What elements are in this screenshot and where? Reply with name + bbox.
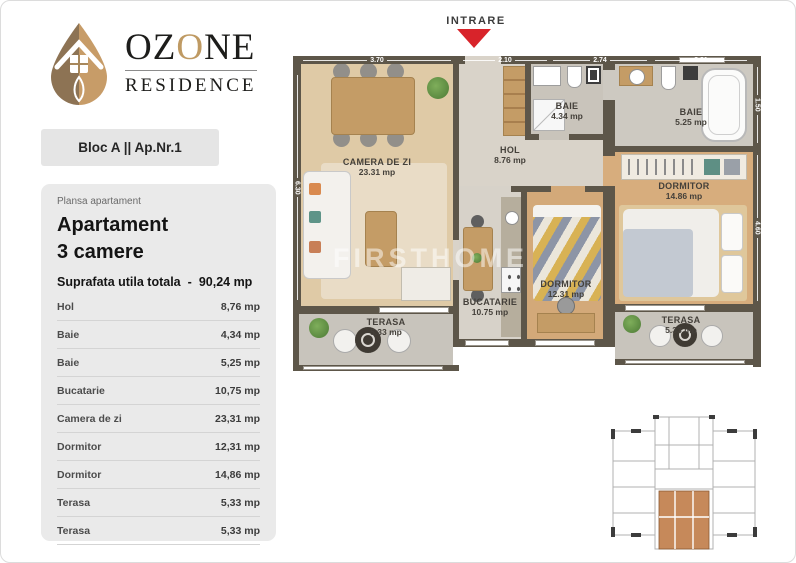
- row-label: Camera de zi: [57, 413, 122, 425]
- sheet: OZONE RESIDENCE Bloc A || Ap.Nr.1 Plansa…: [0, 0, 796, 563]
- key-plan-highlighted-unit: [659, 491, 709, 549]
- room-area: 5.25 mp: [651, 117, 731, 127]
- row-value: 5,33 mp: [221, 497, 260, 509]
- door-opening: [603, 156, 615, 186]
- card-title: Apartament 3 camere: [57, 212, 260, 266]
- room-name: BAIE: [651, 107, 731, 117]
- row-value: 23,31 mp: [215, 413, 260, 425]
- toilet: [661, 66, 676, 90]
- room-label-camera-de-zi: CAMERA DE ZI 23.31 mp: [317, 157, 437, 177]
- room-area: 4.34 mp: [527, 111, 607, 121]
- area-row-terasa-2: Terasa5,33 mp: [57, 517, 260, 545]
- dimension-value: 3.31: [691, 57, 711, 64]
- room-name: TERASA: [326, 317, 446, 327]
- dimension-top-2: 2.10: [463, 57, 547, 63]
- area-table: Hol8,76 mp Baie4,34 mp Baie5,25 mp Bucat…: [57, 293, 260, 545]
- room-name: BAIE: [527, 101, 607, 111]
- row-value: 8,76 mp: [221, 301, 260, 313]
- row-label: Hol: [57, 301, 74, 313]
- wall: [525, 56, 531, 140]
- row-label: Terasa: [57, 525, 90, 537]
- room-area: 10.75 mp: [450, 307, 530, 317]
- bathtub: [701, 68, 747, 142]
- room-name: DORMITOR: [526, 279, 606, 289]
- desk: [537, 313, 595, 333]
- door-opening: [551, 186, 585, 192]
- washing-machine: [586, 66, 601, 84]
- dimension-value: 2.10: [495, 57, 515, 64]
- dimension-value: 6.30: [294, 178, 301, 198]
- bed-pillow: [533, 205, 601, 217]
- wardrobe: [621, 154, 747, 180]
- area-row-dormitor-2: Dormitor14,86 mp: [57, 461, 260, 489]
- room-label-baie-mica: BAIE 4.34 mp: [527, 101, 607, 121]
- pillow: [309, 241, 321, 253]
- row-value: 12,31 mp: [215, 441, 260, 453]
- dimension-top-1: 3.70: [303, 57, 451, 63]
- row-value: 5,25 mp: [221, 357, 260, 369]
- room-label-dormitor-mic: DORMITOR 12.31 mp: [526, 279, 606, 299]
- window: [379, 307, 449, 313]
- building-key-plan: [603, 413, 765, 553]
- total-area-label: Suprafata utila totala: [57, 275, 181, 289]
- entrance-arrow-icon: [457, 29, 491, 48]
- row-label: Dormitor: [57, 441, 101, 453]
- room-area: 12.31 mp: [526, 289, 606, 299]
- folded-clothes: [724, 159, 740, 175]
- dimension-top-4: 3.31: [655, 57, 747, 63]
- wall: [615, 146, 753, 152]
- door-opening: [603, 70, 615, 100]
- room-label-terasa-stanga: TERASA 5.33 mp: [326, 317, 446, 337]
- dimension-right-2: 4.60: [753, 155, 761, 301]
- row-label: Terasa: [57, 497, 90, 509]
- brand-name-part: OZ: [125, 27, 176, 68]
- washbasin: [629, 69, 645, 85]
- dimension-value: 4.60: [754, 218, 761, 238]
- brand-name-accent: O: [176, 27, 204, 68]
- row-value: 4,34 mp: [221, 329, 260, 341]
- brand-logo-icon: [43, 21, 115, 105]
- room-area: 14.86 mp: [634, 191, 734, 201]
- washbasin: [533, 66, 561, 86]
- room-area: 5.33 mp: [326, 327, 446, 337]
- terrace-window: [625, 360, 745, 364]
- closet-cabinet: [503, 66, 527, 136]
- dimension-value: 2.74: [590, 57, 610, 64]
- room-label-dormitor-mare: DORMITOR 14.86 mp: [634, 181, 734, 201]
- toilet: [567, 66, 582, 88]
- total-area-value: 90,24 mp: [199, 275, 253, 289]
- room-label-terasa-dreapta: TERASA 5.33 mp: [631, 315, 731, 335]
- row-value: 10,75 mp: [215, 385, 260, 397]
- terrace-window: [303, 366, 443, 370]
- total-area-line: Suprafata utila totala - 90,24 mp: [57, 275, 260, 289]
- room-name: TERASA: [631, 315, 731, 325]
- room-label-hol: HOL 8.76 mp: [470, 145, 550, 165]
- bed-pillow: [721, 255, 743, 293]
- kitchen-passage: [459, 186, 511, 192]
- brand-logo: OZONE RESIDENCE: [43, 21, 257, 105]
- unit-badge-label: Bloc A || Ap.Nr.1: [78, 140, 182, 155]
- brand-subname: RESIDENCE: [125, 70, 257, 97]
- room-area: 23.31 mp: [317, 167, 437, 177]
- card-eyebrow: Plansa apartament: [57, 196, 260, 207]
- folded-clothes: [704, 159, 720, 175]
- terrace-parapet: [293, 314, 299, 371]
- pillow: [309, 183, 321, 195]
- area-row-camera-de-zi: Camera de zi23,31 mp: [57, 405, 260, 433]
- card-title-line2: 3 camere: [57, 239, 260, 266]
- area-row-dormitor-1: Dormitor12,31 mp: [57, 433, 260, 461]
- window: [465, 340, 509, 346]
- room-name: CAMERA DE ZI: [317, 157, 437, 167]
- card-title-line1: Apartament: [57, 212, 260, 239]
- sink: [505, 211, 519, 225]
- row-value: 5,33 mp: [221, 525, 260, 537]
- row-value: 14,86 mp: [215, 469, 260, 481]
- total-area-separator: -: [188, 275, 192, 289]
- plant-icon: [427, 77, 449, 99]
- window: [535, 340, 595, 346]
- pillow: [309, 211, 321, 223]
- watermark: FIRSTHOME: [333, 243, 528, 274]
- row-label: Bucatarie: [57, 385, 105, 397]
- bed-pillow: [721, 213, 743, 251]
- washing-machine: [683, 66, 698, 80]
- floor-plan: INTRARE: [289, 15, 769, 397]
- row-label: Dormitor: [57, 469, 101, 481]
- blanket: [623, 229, 693, 297]
- dimension-top-3: 2.74: [553, 57, 647, 63]
- door-opening: [539, 134, 569, 140]
- area-row-bucatarie: Bucatarie10,75 mp: [57, 377, 260, 405]
- brand-name-part: NE: [204, 27, 255, 68]
- room-name: DORMITOR: [634, 181, 734, 191]
- brand-logo-text: OZONE RESIDENCE: [125, 29, 257, 97]
- dimension-value: 1.50: [754, 95, 761, 115]
- dimension-left-1: 6.30: [293, 75, 301, 300]
- room-area: 5.33 mp: [631, 325, 731, 335]
- room-area: 8.76 mp: [470, 155, 550, 165]
- area-row-terasa-1: Terasa5,33 mp: [57, 489, 260, 517]
- dimension-right-1: 1.50: [753, 67, 761, 143]
- area-row-baie-1: Baie4,34 mp: [57, 321, 260, 349]
- dimension-value: 3.70: [367, 57, 387, 64]
- room-name: BUCATARIE: [450, 297, 530, 307]
- dining-table: [331, 77, 415, 135]
- apartment-summary-card: Plansa apartament Apartament 3 camere Su…: [41, 184, 276, 541]
- room-label-baie-mare: BAIE 5.25 mp: [651, 107, 731, 127]
- entrance-label: INTRARE: [421, 15, 531, 27]
- window: [625, 305, 705, 311]
- row-label: Baie: [57, 329, 79, 341]
- area-row-baie-2: Baie5,25 mp: [57, 349, 260, 377]
- unit-badge: Bloc A || Ap.Nr.1: [41, 129, 219, 166]
- room-name: HOL: [470, 145, 550, 155]
- hanging-clothes: [628, 159, 696, 175]
- room-label-bucatarie: BUCATARIE 10.75 mp: [450, 297, 530, 317]
- brand-name: OZONE: [125, 29, 257, 66]
- row-label: Baie: [57, 357, 79, 369]
- area-row-hol: Hol8,76 mp: [57, 293, 260, 321]
